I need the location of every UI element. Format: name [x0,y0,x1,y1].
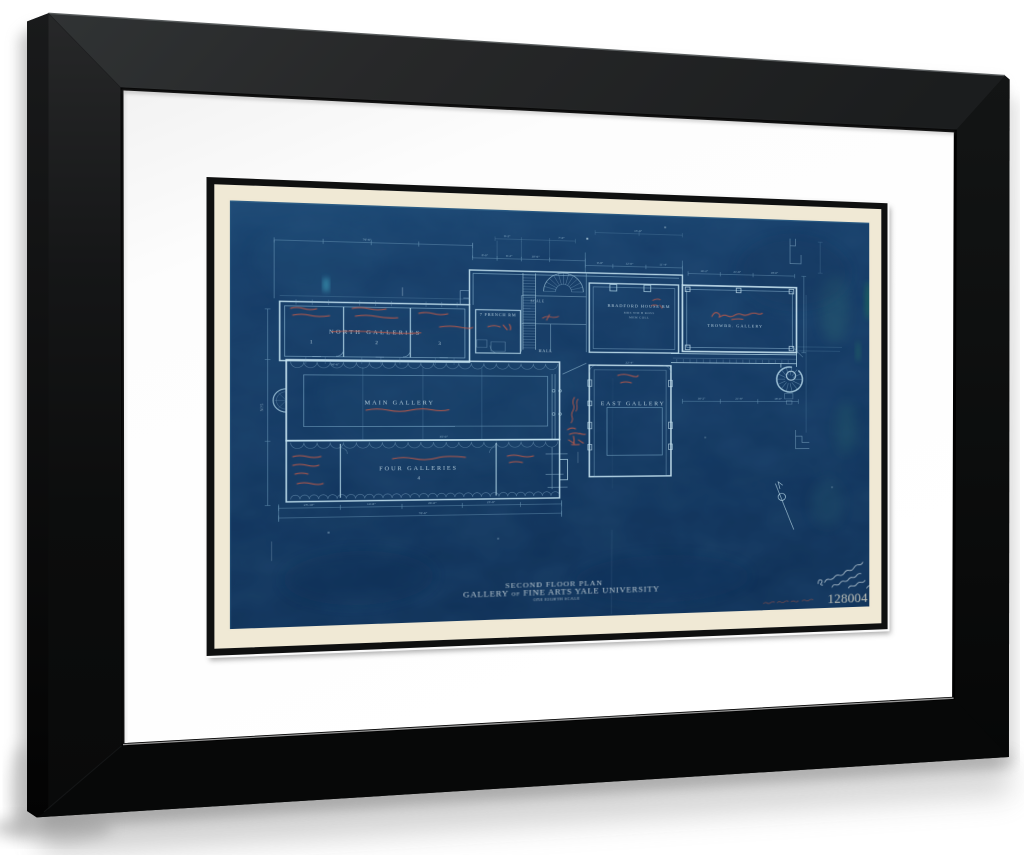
svg-text:23'-10": 23'-10" [304,503,315,507]
svg-text:9'-2": 9'-2" [504,235,511,239]
svg-text:HALL: HALL [539,349,553,353]
svg-text:TROWBR. GALLERY: TROWBR. GALLERY [707,324,763,329]
svg-text:76'-6": 76'-6" [419,511,428,515]
svg-text:26'-0": 26'-0" [428,501,437,505]
svg-text:MEM COLL: MEM COLL [629,316,649,320]
svg-text:10'-6": 10'-6" [531,255,540,259]
svg-text:16'-2": 16'-2" [698,397,706,400]
svg-text:14'-6": 14'-6" [367,502,376,506]
svg-text:N?5: N?5 [259,403,264,411]
svg-text:EAST GALLERY: EAST GALLERY [601,401,666,407]
svg-text:MAIN GALLERY: MAIN GALLERY [365,400,435,406]
svg-text:22'-4": 22'-4" [625,361,633,364]
svg-text:MRS WM B ROSS: MRS WM B ROSS [624,311,655,315]
svg-text:15'-8": 15'-8" [634,229,642,233]
svg-text:11'-4": 11'-4" [659,263,667,267]
svg-text:9'-8": 9'-8" [597,261,604,265]
svg-text:8'-0": 8'-0" [482,254,489,258]
svg-text:18'-0": 18'-0" [774,397,782,400]
svg-text:35'-0": 35'-0" [439,435,448,439]
svg-text:76'-6": 76'-6" [363,238,372,242]
svg-text:2: 2 [375,341,378,346]
svg-text:6'-2": 6'-2" [506,254,513,258]
svg-text:FOUR GALLERIES: FOUR GALLERIES [379,465,458,472]
svg-text:21'-8": 21'-8" [735,397,743,400]
svg-text:128004: 128004 [828,591,868,606]
svg-text:7'-0": 7'-0" [558,236,565,240]
svg-text:18'-0": 18'-0" [771,271,779,275]
svg-text:12'-0": 12'-0" [625,262,633,266]
svg-text:36'-6": 36'-6" [331,363,340,367]
svg-text:23'-8": 23'-8" [487,500,496,504]
svg-text:16'-2": 16'-2" [700,269,708,273]
svg-text:3: 3 [438,341,441,346]
svg-text:SCALE: SCALE [531,300,545,304]
svg-text:4: 4 [417,476,420,481]
svg-text:1: 1 [310,340,313,345]
svg-text:7 FRENCH RM: 7 FRENCH RM [480,312,517,317]
svg-text:21'-8": 21'-8" [733,270,741,274]
svg-text:NORTH GALLERIES: NORTH GALLERIES [329,329,422,336]
